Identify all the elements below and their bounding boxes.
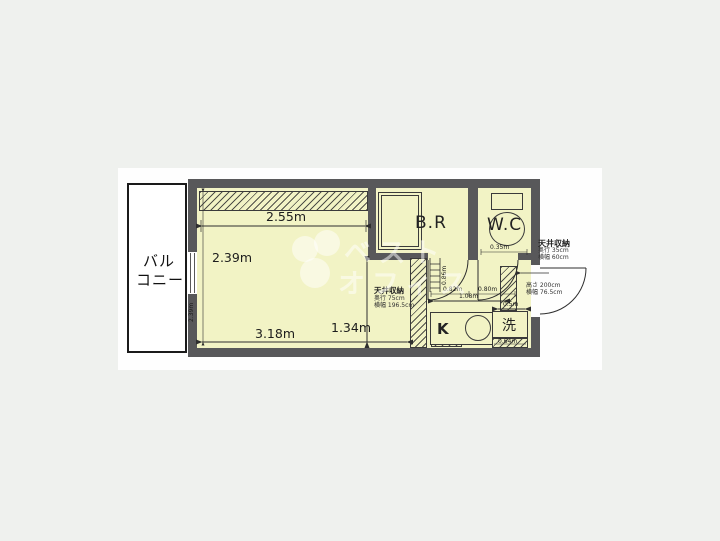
balcony-label: バル コニー xyxy=(136,252,182,290)
watermark-logo-dot2 xyxy=(314,230,340,256)
wall-hall-2 xyxy=(468,253,478,260)
dim-laundry: 0.64m xyxy=(498,338,517,345)
kitchen-sink xyxy=(465,315,491,341)
ceiling-storage-strip xyxy=(199,191,368,211)
toilet-tank xyxy=(491,193,523,210)
storage-entry-width: 横幅 60cm xyxy=(538,255,570,262)
bath-label: B.R xyxy=(415,213,447,233)
laundry-label: 洗 xyxy=(502,315,516,335)
storage-room-width: 横幅 196.5cm xyxy=(374,303,414,310)
wc-label: W.C xyxy=(487,215,522,235)
dim-top: 2.55m xyxy=(266,209,306,224)
dim-lower-right: 1.34m xyxy=(331,320,371,335)
entry-door-width: 横幅 76.5cm xyxy=(526,290,562,297)
dim-half: 0.5m xyxy=(503,301,518,308)
floorplan-image: バル コニー xyxy=(0,0,720,541)
balcony-window xyxy=(188,252,197,294)
balcony-label-line1: バル xyxy=(136,252,182,271)
storage-entry-note: 天井収納 奥行 35cm 横幅 60cm xyxy=(538,239,570,262)
wall-bath-wc xyxy=(468,188,478,260)
watermark-line2: オフィス xyxy=(338,262,473,301)
dim-bottom: 3.18m xyxy=(255,326,295,341)
dim-left-tiny: 2.39m xyxy=(188,303,195,322)
watermark-logo-dot3 xyxy=(300,258,330,288)
wall-hall-3 xyxy=(518,253,531,260)
dim-wc-top: 0.35m xyxy=(490,244,509,251)
balcony-label-line2: コニー xyxy=(136,271,182,290)
entry-door-note: 高さ 200cm 横幅 76.5cm xyxy=(526,283,562,297)
dim-room: 2.39m xyxy=(212,250,252,265)
dim-wc-door: 0.80m xyxy=(478,286,497,293)
kitchen-label: K xyxy=(437,320,449,338)
